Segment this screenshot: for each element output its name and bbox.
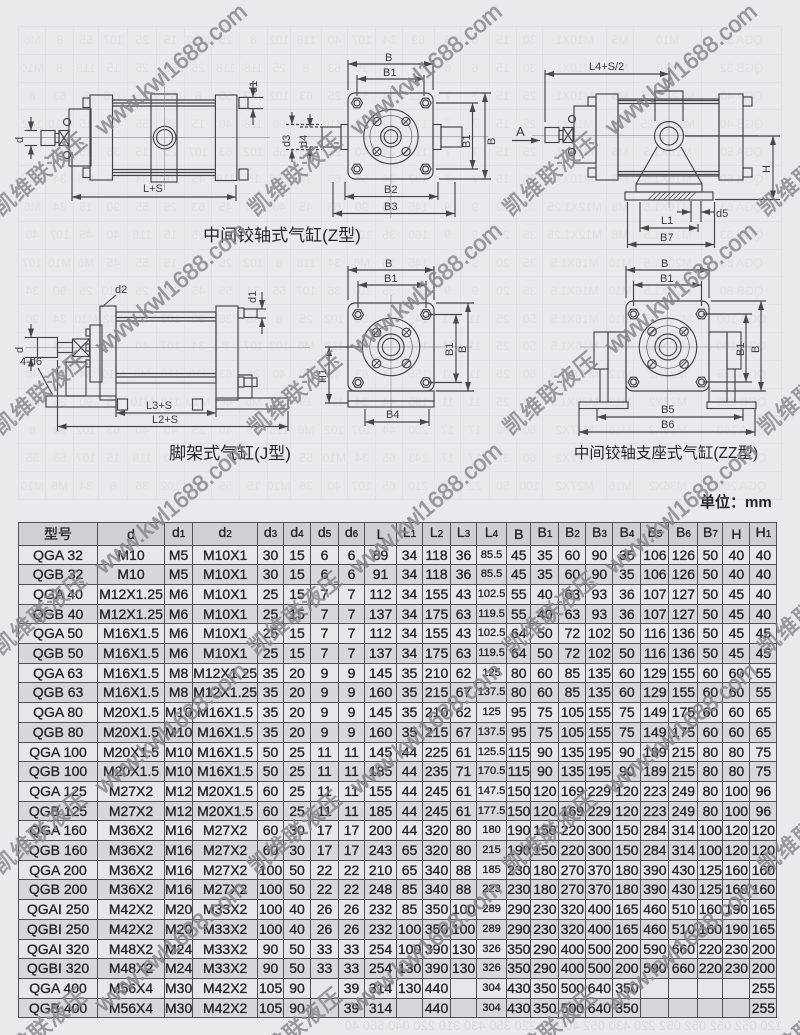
svg-text:B1: B1: [384, 273, 397, 285]
svg-text:d1: d1: [247, 291, 259, 303]
svg-text:B2: B2: [384, 184, 397, 196]
svg-text:中间铰轴式气缸(Z型): 中间铰轴式气缸(Z型): [203, 225, 361, 245]
svg-text:L1: L1: [661, 215, 673, 227]
svg-text:B4: B4: [386, 409, 399, 421]
svg-text:B1: B1: [444, 343, 456, 356]
svg-text:B3: B3: [384, 201, 397, 213]
svg-text:L4+S/2: L4+S/2: [589, 61, 624, 73]
svg-text:B: B: [661, 258, 668, 270]
svg-text:B: B: [385, 52, 392, 64]
svg-text:H1: H1: [317, 369, 329, 383]
svg-text:B1: B1: [461, 135, 473, 148]
svg-text:B: B: [385, 258, 392, 270]
svg-text:B7: B7: [660, 232, 673, 244]
svg-text:B1: B1: [660, 273, 673, 285]
svg-text:d3: d3: [281, 135, 293, 147]
svg-text:B1: B1: [735, 343, 747, 356]
svg-text:L+S: L+S: [143, 183, 163, 195]
svg-text:d: d: [14, 137, 26, 143]
svg-text:A: A: [516, 124, 525, 139]
svg-text:L3+S: L3+S: [146, 400, 172, 412]
svg-text:中间铰轴支座式气缸(ZZ型): 中间铰轴支座式气缸(ZZ型): [574, 443, 758, 462]
svg-text:B: B: [486, 138, 498, 145]
svg-text:B: B: [457, 346, 469, 353]
svg-text:B1: B1: [383, 67, 396, 79]
svg-text:d: d: [14, 347, 26, 353]
svg-text:4-d6: 4-d6: [20, 356, 42, 368]
svg-text:B6: B6: [661, 419, 674, 431]
svg-text:d4: d4: [298, 135, 310, 147]
svg-text:L2+S: L2+S: [152, 414, 178, 426]
svg-text:B5: B5: [661, 404, 674, 416]
svg-text:B: B: [750, 346, 762, 353]
svg-text:H: H: [761, 165, 773, 173]
svg-text:d5: d5: [716, 208, 728, 220]
svg-text:d1: d1: [248, 81, 260, 93]
svg-text:d2: d2: [115, 284, 127, 296]
svg-text:脚架式气缸(J型): 脚架式气缸(J型): [169, 443, 291, 463]
